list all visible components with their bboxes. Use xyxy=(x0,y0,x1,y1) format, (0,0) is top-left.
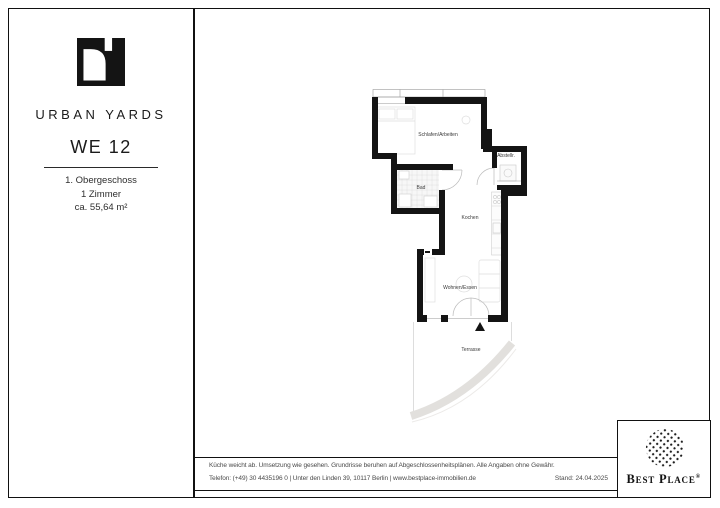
sofa xyxy=(479,260,500,302)
bed xyxy=(377,107,415,154)
broker-name: Best Place® xyxy=(618,472,710,487)
terrace-door-arc-right xyxy=(471,298,489,316)
washing-machine xyxy=(500,165,516,181)
storage-door-arc xyxy=(477,168,494,185)
shower xyxy=(424,196,437,207)
toilet xyxy=(399,194,411,207)
room-label-storage: Abstellr. xyxy=(497,153,515,159)
terrace-layer xyxy=(411,322,516,422)
expose-page: URBAN YARDS WE 12 1. Obergeschoss 1 Zimm… xyxy=(0,0,720,508)
unit-title: WE 12 xyxy=(9,137,193,158)
site-buildings-illustration xyxy=(9,360,193,500)
door-swings xyxy=(442,168,494,316)
brand-name: URBAN YARDS xyxy=(9,107,193,122)
floor-plan: Schlafen/Arbeiten Abstellr. Bad Kochen W… xyxy=(355,82,545,442)
unit-rooms: 1 Zimmer xyxy=(9,188,193,202)
sideboard xyxy=(425,258,435,302)
window-band xyxy=(373,90,485,98)
sidebar-divider xyxy=(193,8,195,498)
room-label-bath: Bad xyxy=(417,185,426,191)
unit-area: ca. 55,64 m² xyxy=(9,201,193,215)
footer-disclaimer: Küche weicht ab. Umsetzung wie gesehen. … xyxy=(209,462,539,469)
broker-name-text: Best Place xyxy=(627,472,696,486)
unit-floor: 1. Obergeschoss xyxy=(9,174,193,188)
terrace-door-arc-left xyxy=(453,298,471,316)
sliding-door-leaf xyxy=(425,251,430,253)
room-label-terrace: Terrasse xyxy=(461,347,480,353)
washbasin xyxy=(399,171,409,179)
ceiling-lamp xyxy=(462,116,470,124)
sidebar-rule xyxy=(44,167,158,168)
sidebar: URBAN YARDS WE 12 1. Obergeschoss 1 Zimm… xyxy=(9,8,193,498)
unit-info: 1. Obergeschoss 1 Zimmer ca. 55,64 m² xyxy=(9,174,193,215)
broker-logo-box: Best Place® xyxy=(617,420,711,498)
plan-date: Stand: 24.04.2025 xyxy=(470,475,608,482)
best-place-globe-icon xyxy=(644,427,686,469)
room-label-kitchen: Kochen xyxy=(462,215,479,221)
room-label-bedroom: Schlafen/Arbeiten xyxy=(418,132,458,138)
entrance-marker-icon xyxy=(475,322,485,331)
footer-rule-bottom xyxy=(194,490,617,491)
footer-rule-top xyxy=(194,457,617,458)
bath-door-arc xyxy=(442,170,462,190)
terrace-curve-band xyxy=(411,343,512,416)
room-label-living: Wohnen/Essen xyxy=(443,285,477,291)
registered-mark: ® xyxy=(696,474,701,480)
urban-yards-logo-icon xyxy=(77,38,125,86)
